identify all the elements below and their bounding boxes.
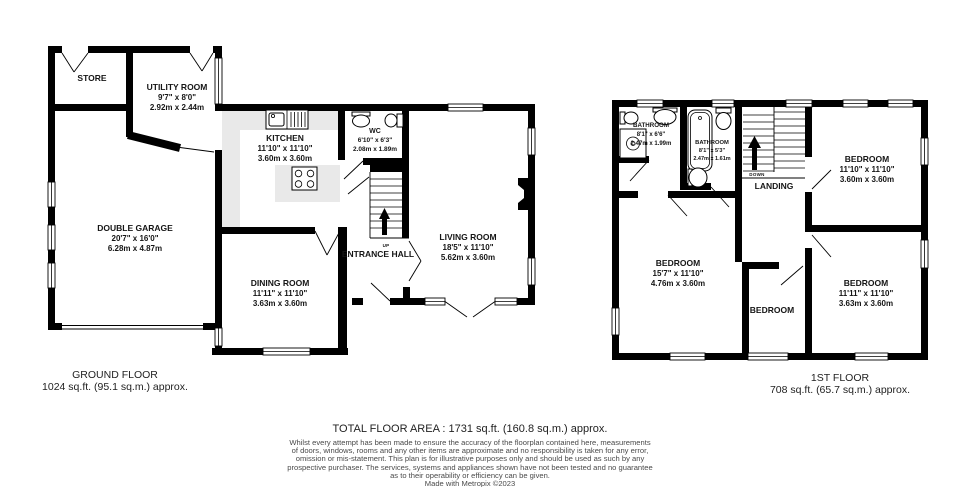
- dining-label: DINING ROOM: [251, 278, 310, 288]
- bedroom-left-dims-ft: 15'7" x 11'10": [653, 269, 704, 278]
- up-arrow-icon: [379, 208, 390, 235]
- disclaimer: Whilst every attempt has been made to en…: [170, 439, 770, 487]
- garage-door: [62, 326, 203, 330]
- toilet-icon: [716, 108, 731, 130]
- basin-icon: [352, 112, 370, 127]
- bathroom2-label: BATHROOM: [695, 140, 729, 146]
- room-labels: BATHROOM 8'1" x 6'6" 2.47m x 1.99m BATHR…: [631, 122, 895, 315]
- footer: TOTAL FLOOR AREA : 1731 sq.ft. (160.8 sq…: [170, 423, 770, 487]
- down-arrow-icon: [748, 136, 761, 170]
- floorplan-page: STORE UTILITY ROOM 9'7" x 8'0" 2.92m x 2…: [0, 0, 980, 487]
- wc-dims-m: 2.08m x 1.89m: [353, 146, 397, 153]
- sink-icon: [266, 110, 308, 129]
- dining-dims-m: 3.63m x 3.60m: [253, 299, 307, 308]
- garage-dims-ft: 20'7" x 16'0": [112, 234, 159, 243]
- store-label: STORE: [77, 73, 106, 83]
- entrance-hall-label: ENTRANCE HALL: [342, 249, 414, 259]
- bedroom-tr-dims-m: 3.60m x 3.60m: [840, 175, 894, 184]
- first-floor-title: 1ST FLOOR: [740, 372, 940, 384]
- toilet-icon: [385, 114, 403, 127]
- ground-floor-caption: GROUND FLOOR 1024 sq.ft. (95.1 sq.m.) ap…: [15, 369, 215, 393]
- stairs: [742, 107, 805, 178]
- first-floor-caption: 1ST FLOOR 708 sq.ft. (65.7 sq.m.) approx…: [740, 372, 940, 396]
- bathroom1-label: BATHROOM: [633, 122, 669, 129]
- living-dims-m: 5.62m x 3.60m: [441, 253, 495, 262]
- dining-dims-ft: 11'11" x 11'10": [253, 289, 308, 298]
- wc-label: WC: [369, 128, 381, 135]
- garage-dims-m: 6.28m x 4.87m: [108, 244, 162, 253]
- bedroom-left-label: BEDROOM: [656, 258, 700, 268]
- bedroom-br-label: BEDROOM: [844, 278, 888, 288]
- walls: [612, 100, 928, 360]
- first-floor-area: 708 sq.ft. (65.7 sq.m.) approx.: [740, 384, 940, 396]
- bathroom1-dims-ft: 8'1" x 6'6": [637, 132, 666, 138]
- ground-floor-plan: STORE UTILITY ROOM 9'7" x 8'0" 2.92m x 2…: [35, 30, 555, 375]
- windows: [48, 58, 535, 355]
- made-with-credit: Made with Metropix ©2023: [170, 480, 770, 487]
- kitchen-label: KITCHEN: [266, 133, 304, 143]
- first-floor-plan: BATHROOM 8'1" x 6'6" 2.47m x 1.99m BATHR…: [600, 90, 940, 380]
- living-label: LIVING ROOM: [439, 232, 496, 242]
- utility-dims-m: 2.92m x 2.44m: [150, 103, 204, 112]
- down-label: DOWN: [749, 172, 764, 177]
- bedroom-br-dims-ft: 11'11" x 11'10": [839, 289, 894, 298]
- landing-label: LANDING: [755, 181, 794, 191]
- bedroom-left-dims-m: 4.76m x 3.60m: [651, 279, 705, 288]
- bedroom-tr-dims-ft: 11'10" x 11'10": [840, 165, 895, 174]
- kitchen-dims-ft: 11'10" x 11'10": [258, 144, 313, 153]
- basin-icon: [688, 168, 707, 187]
- up-label: UP: [383, 243, 390, 248]
- stove-icon: [292, 167, 317, 190]
- kitchen-dims-m: 3.60m x 3.60m: [258, 154, 312, 163]
- bedroom-middle-label: BEDROOM: [750, 305, 794, 315]
- ground-floor-title: GROUND FLOOR: [15, 369, 215, 381]
- ground-floor-area: 1024 sq.ft. (95.1 sq.m.) approx.: [15, 381, 215, 393]
- bedroom-tr-label: BEDROOM: [845, 154, 889, 164]
- total-floor-area: TOTAL FLOOR AREA : 1731 sq.ft. (160.8 sq…: [170, 423, 770, 435]
- wc-dims-ft: 6'10" x 6'3": [358, 137, 393, 144]
- fireplace: [518, 178, 528, 210]
- living-dims-ft: 18'5" x 11'10": [443, 243, 494, 252]
- utility-dims-ft: 9'7" x 8'0": [158, 93, 196, 102]
- utility-label: UTILITY ROOM: [147, 82, 208, 92]
- bathroom2-dims-ft: 8'1" x 5'3": [699, 148, 726, 154]
- garage-label: DOUBLE GARAGE: [97, 223, 173, 233]
- bathroom2-dims-m: 2.47m x 1.61m: [693, 156, 730, 162]
- bedroom-br-dims-m: 3.63m x 3.60m: [839, 299, 893, 308]
- bathroom1-dims-m: 2.47m x 1.99m: [631, 141, 672, 147]
